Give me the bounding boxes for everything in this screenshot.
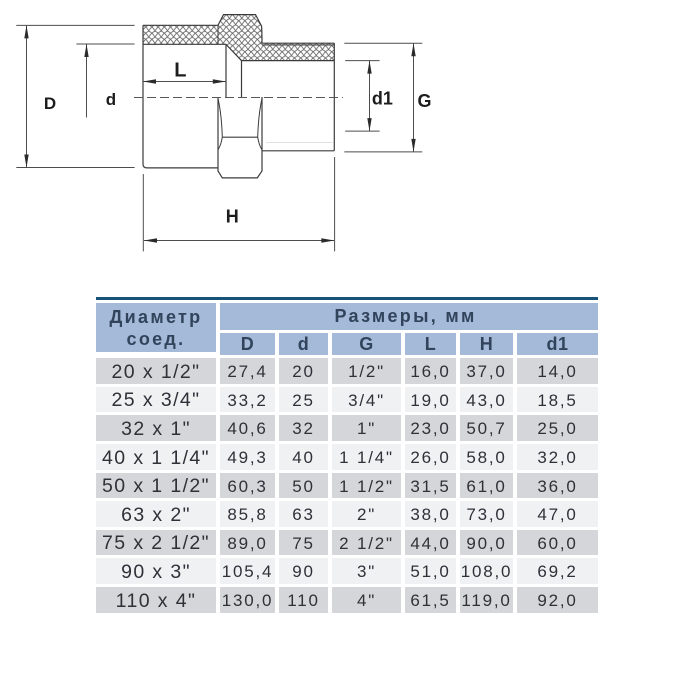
svg-text:G: G <box>417 91 431 111</box>
svg-text:L: L <box>174 60 186 82</box>
svg-text:D: D <box>44 94 56 113</box>
svg-text:H: H <box>226 206 239 226</box>
svg-text:d: d <box>106 90 116 109</box>
svg-text:d1: d1 <box>372 89 393 109</box>
